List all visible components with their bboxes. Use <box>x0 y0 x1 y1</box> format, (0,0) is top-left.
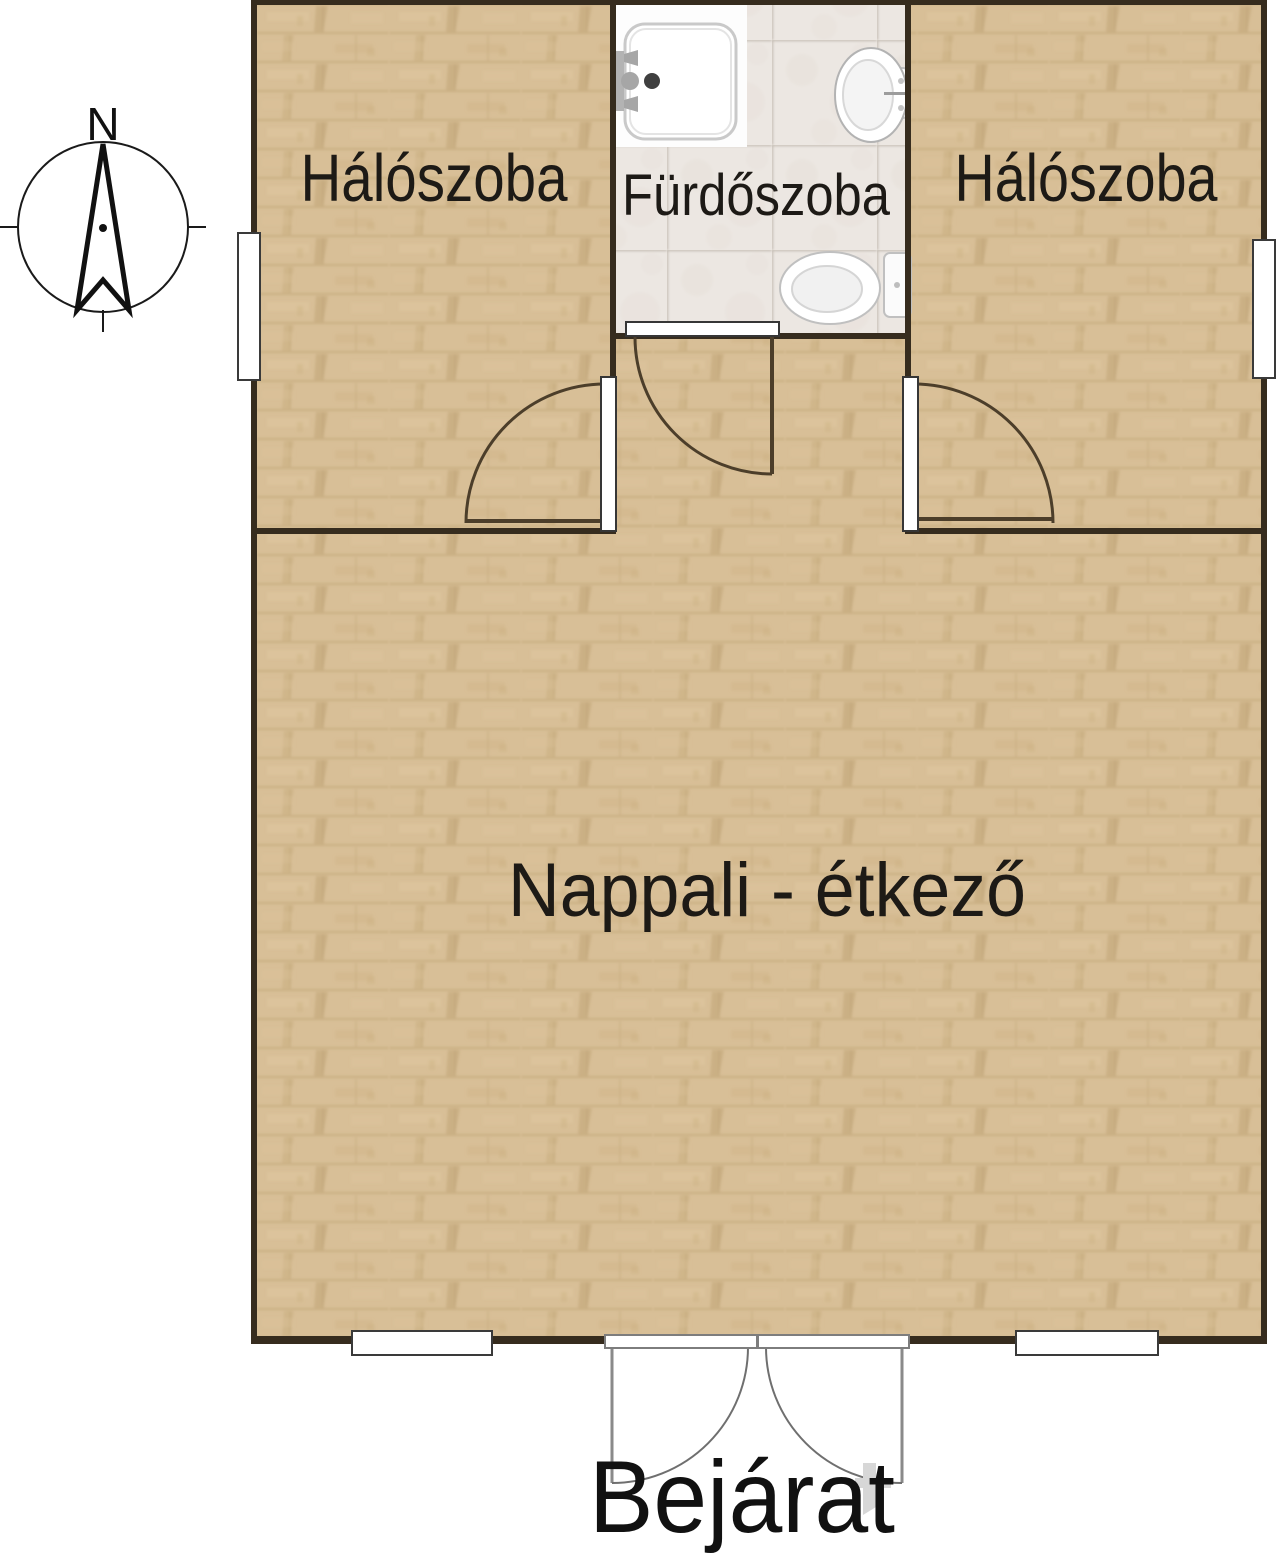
svg-text:Nappali - étkező: Nappali - étkező <box>508 848 1026 933</box>
svg-text:Hálószoba: Hálószoba <box>955 141 1219 216</box>
svg-text:Fürdőszoba: Fürdőszoba <box>622 163 891 228</box>
svg-text:Bejárat: Bejárat <box>589 1440 895 1554</box>
svg-text:Hálószoba: Hálószoba <box>301 141 569 216</box>
svg-text:N: N <box>86 98 119 150</box>
